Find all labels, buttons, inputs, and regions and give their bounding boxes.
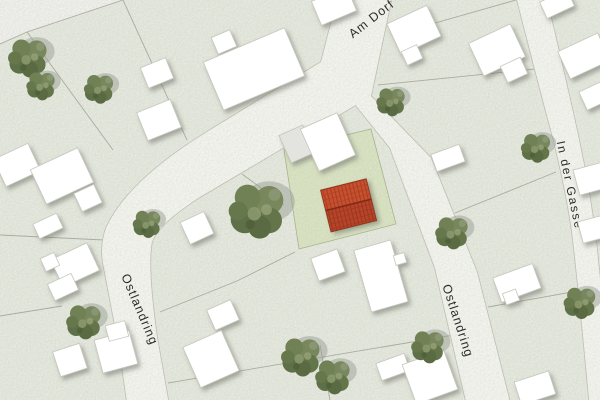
site-plan-map[interactable]: Am Dorf Ostlandring Ostlandring In der G… [0, 0, 600, 400]
map-canvas[interactable]: Am Dorf Ostlandring Ostlandring In der G… [0, 0, 600, 400]
